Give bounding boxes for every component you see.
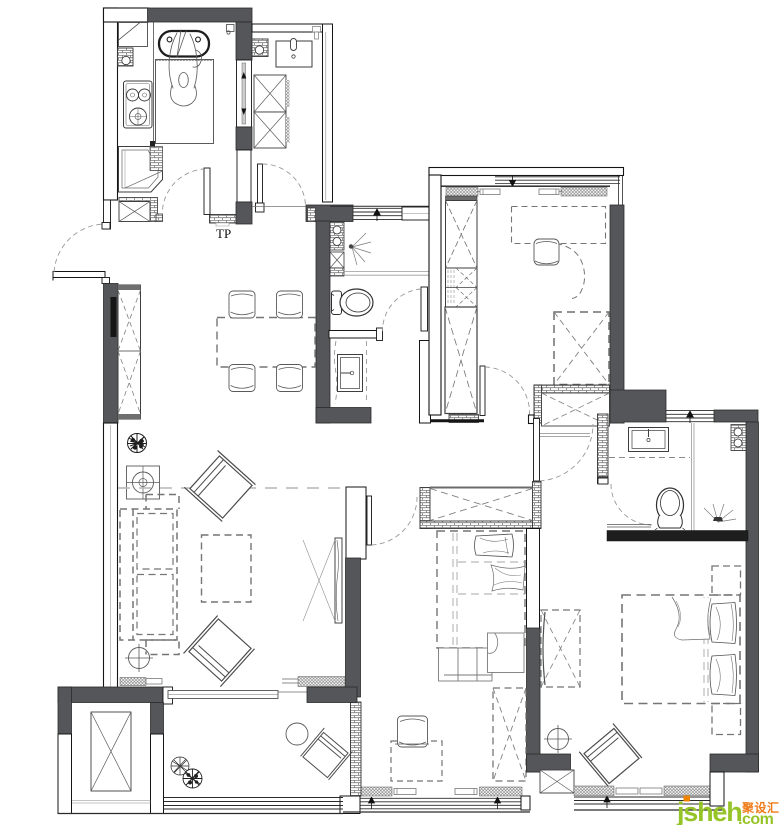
svg-text:聚设汇: 聚设汇 (741, 800, 780, 815)
svg-text:TP: TP (216, 226, 231, 241)
svg-text:jsheh: jsheh (676, 797, 742, 825)
